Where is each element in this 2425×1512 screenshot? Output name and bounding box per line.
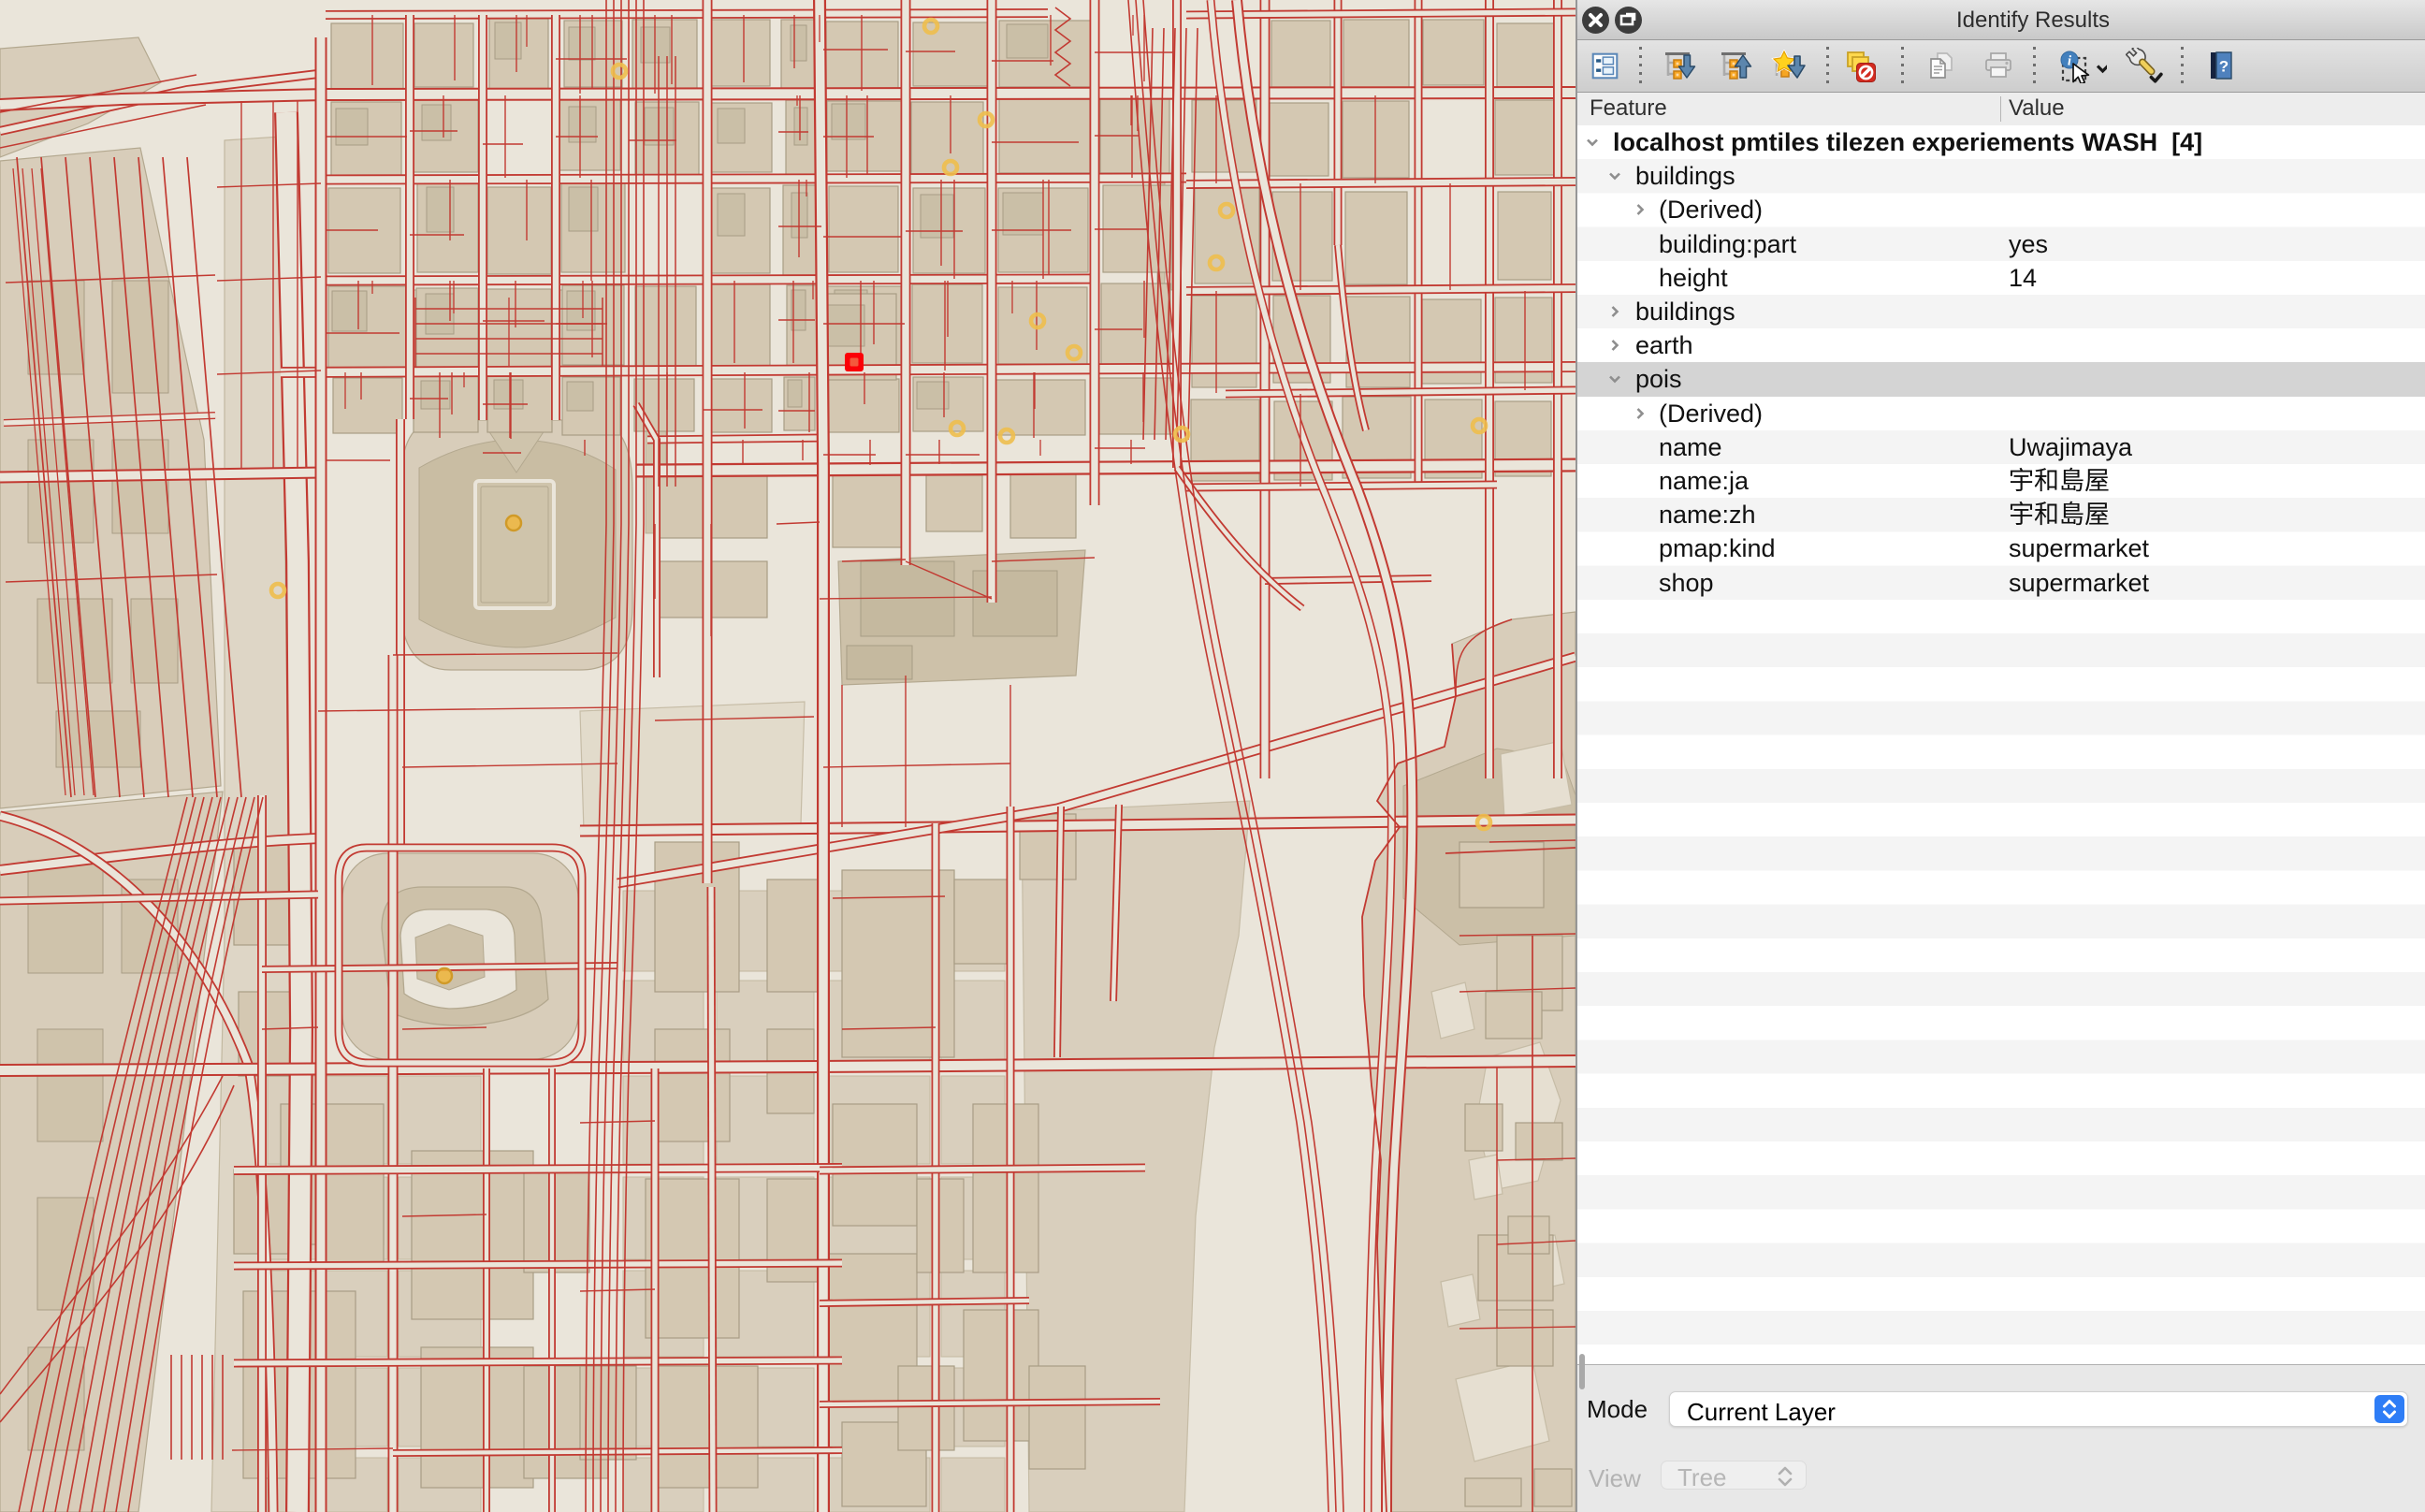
svg-text:?: ? bbox=[2219, 58, 2229, 76]
